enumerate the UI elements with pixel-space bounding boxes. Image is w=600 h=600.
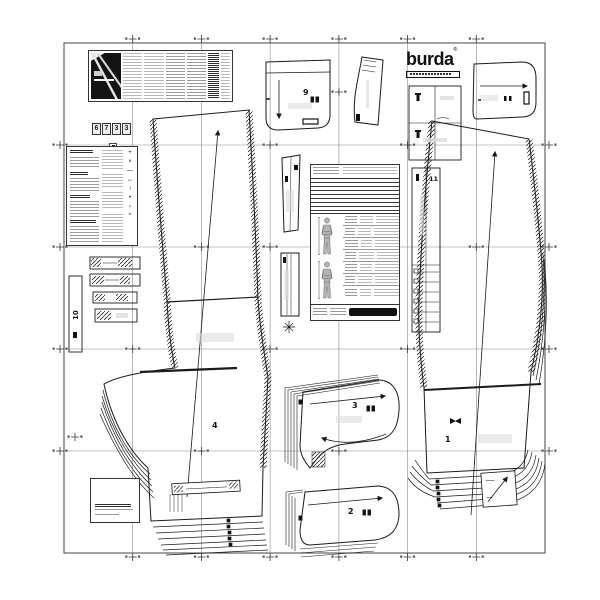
cutting-note-box (481, 471, 517, 507)
piece-fly-strip (282, 155, 300, 232)
facing-lower-number: 2 (348, 507, 354, 516)
facing-upper-number: 3 (352, 401, 358, 410)
instruction-column (187, 53, 206, 99)
strip-10-number: 10 (72, 310, 80, 320)
sheet-info-box (90, 478, 140, 523)
table-footer-bar (349, 308, 397, 316)
pocket-number: 9 (303, 88, 309, 97)
piece-pocket: 9 (266, 60, 330, 130)
belt-strip-overlay (172, 480, 240, 495)
size-rows (311, 179, 399, 214)
piece-small-strip (281, 253, 299, 333)
pattern-digit: 3 (122, 123, 131, 135)
legend-symbols: + × — ↔ ↑ • › ^ (124, 150, 136, 219)
piece-waistband-block (409, 86, 461, 160)
instruction-column (144, 53, 163, 99)
legend-symbol: + (128, 150, 132, 156)
piece-curved-facing (354, 57, 383, 125)
piece-facing-upper: 3 (285, 375, 399, 470)
legend-symbol: ^ (129, 213, 132, 219)
piece-pocket-topright (473, 62, 536, 119)
legend-symbol: — (127, 168, 133, 174)
measurement-figures (313, 215, 343, 303)
brand-logo-text: burda (406, 49, 454, 69)
legend-symbol: › (129, 204, 131, 210)
legend-panel: + × — ↔ ↑ • › ^ (66, 146, 138, 246)
front-leg-number: 4 (212, 421, 218, 430)
legend-symbol: ↑ (129, 186, 132, 192)
legend-symbol: × (128, 159, 132, 165)
legend-symbol: • (129, 195, 131, 201)
registered-mark: ® (454, 47, 458, 53)
brand-logo-bar (406, 71, 460, 78)
grain-cross-icon (283, 321, 295, 333)
legend-symbol: ↔ (127, 177, 133, 183)
strip-11-number: 11 (429, 175, 439, 183)
size-chart-table (310, 164, 400, 321)
pattern-sheet: 4 (0, 0, 600, 600)
pattern-digit: 7 (102, 123, 111, 135)
instruction-column (166, 53, 185, 99)
instruction-column-dark (208, 53, 219, 99)
piece-strip-10: 10 (69, 276, 82, 352)
pattern-digit: 6 (92, 123, 101, 135)
piece-facing-lower: 2 (286, 486, 399, 557)
back-leg-number: 1 (445, 435, 451, 444)
scissors-icon (450, 418, 461, 424)
pattern-digit: 3 (112, 123, 121, 135)
header-instruction-box (88, 50, 233, 102)
fashion-photo (91, 53, 121, 99)
instruction-column (221, 53, 230, 99)
instruction-column (123, 53, 142, 99)
brand-logo: burda® (406, 51, 460, 78)
